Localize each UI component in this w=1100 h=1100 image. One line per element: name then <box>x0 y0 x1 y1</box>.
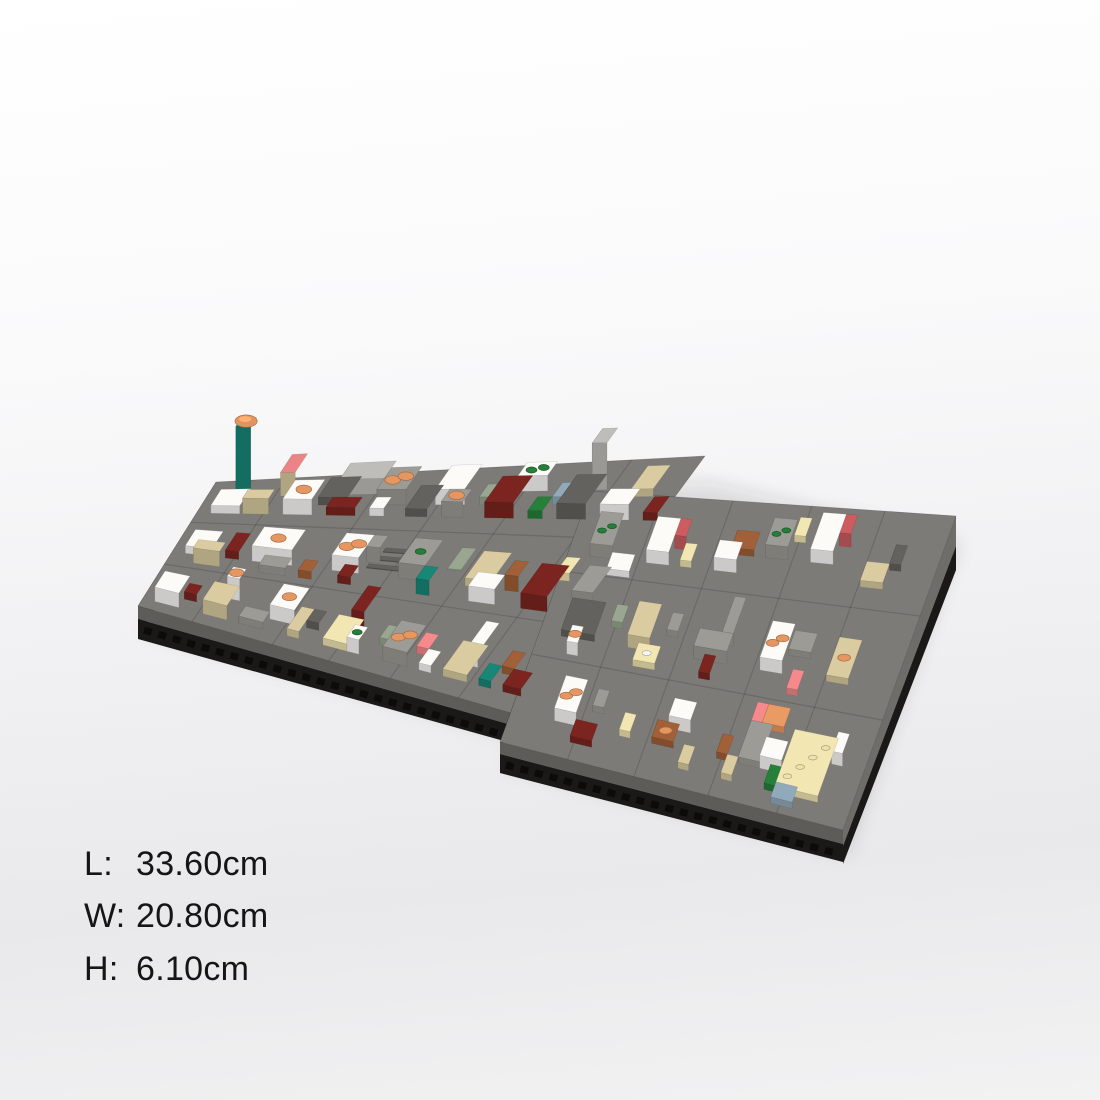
dimension-width-value: 20.80cm <box>136 898 269 935</box>
dimension-length-value: 33.60cm <box>136 846 269 883</box>
dimensions-block: L: 33.60cm W: 20.80cm H: 6.10cm <box>84 846 269 988</box>
dimension-width-label: W: <box>84 898 136 935</box>
dimension-width: W: 20.80cm <box>84 898 269 935</box>
dimension-length-label: L: <box>84 846 136 883</box>
dimension-height-value: 6.10cm <box>136 951 249 988</box>
canvas: L: 33.60cm W: 20.80cm H: 6.10cm <box>0 0 1100 1100</box>
dimension-height: H: 6.10cm <box>84 951 269 988</box>
dimension-length: L: 33.60cm <box>84 846 269 883</box>
dimension-height-label: H: <box>84 951 136 988</box>
